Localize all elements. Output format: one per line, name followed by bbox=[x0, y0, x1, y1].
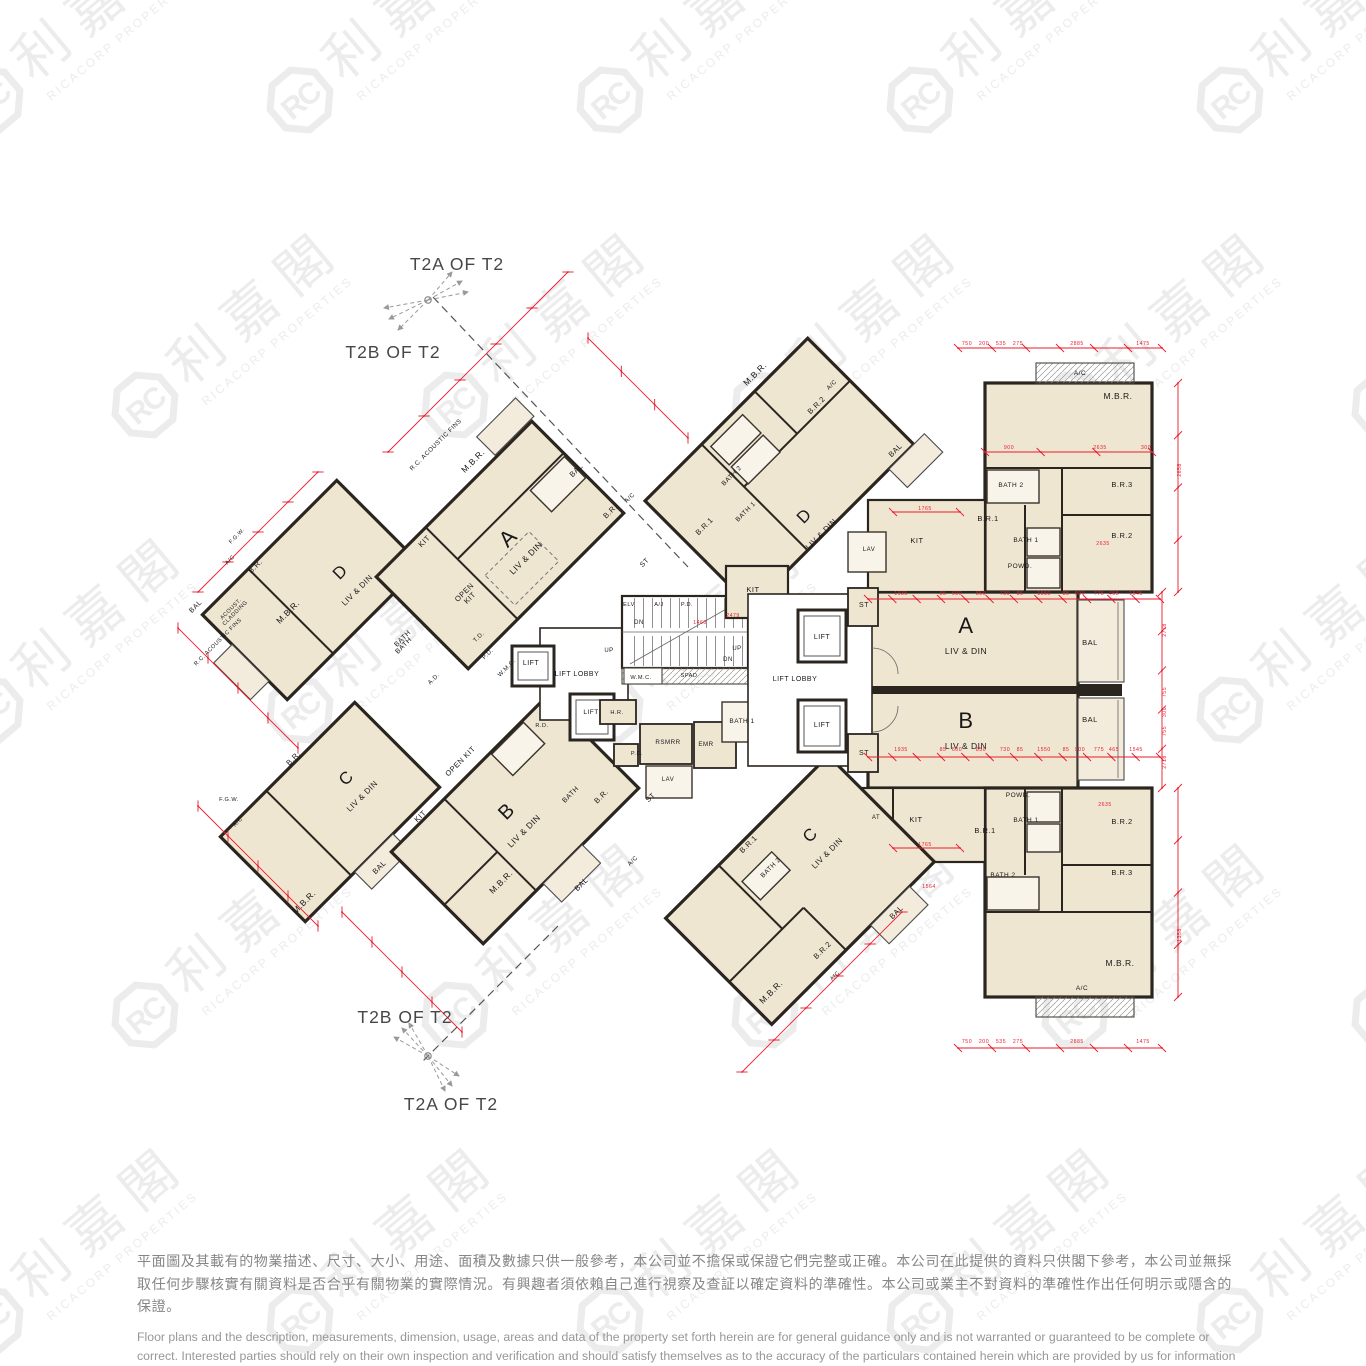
room-label: BATH 1 bbox=[1013, 817, 1038, 824]
room-label: POWD. bbox=[1006, 792, 1031, 799]
dim-label: 1550 bbox=[1037, 591, 1051, 597]
room-label: ST bbox=[859, 750, 869, 757]
dim-label: 730 bbox=[1000, 747, 1010, 753]
room-label: LAV bbox=[662, 777, 674, 783]
dim-label: 600 bbox=[952, 747, 962, 753]
arrow-top-ne bbox=[428, 272, 452, 300]
watermark-logo: RC利嘉閣RICACORP PROPERTIES bbox=[0, 0, 212, 152]
room-label: W.M.C. bbox=[630, 675, 651, 681]
room-label: KIT bbox=[746, 585, 759, 594]
dim-label: 775 bbox=[1094, 747, 1104, 753]
dim-label: 2635 bbox=[1096, 541, 1110, 547]
dim-label: 200 bbox=[979, 341, 989, 347]
room-label: AT bbox=[872, 815, 880, 821]
dim-label: 600 bbox=[952, 591, 962, 597]
dim-label: 465 bbox=[1109, 591, 1119, 597]
dim-label: 900 bbox=[1075, 591, 1085, 597]
watermark-logo: RC利嘉閣RICACORP PROPERTIES bbox=[101, 216, 367, 457]
dim-label: 2778 bbox=[1162, 623, 1168, 637]
watermark-logo: RC利嘉閣RICACORP PROPERTIES bbox=[0, 521, 212, 762]
room-label: KIT bbox=[909, 815, 922, 824]
room-label: LIFT bbox=[583, 709, 598, 716]
room-label: BATH 1 bbox=[729, 718, 754, 725]
dim-label: 275 bbox=[1013, 341, 1023, 347]
dim-label: 2885 bbox=[1070, 341, 1084, 347]
dim-label: 85 bbox=[940, 747, 947, 753]
room-label: ST bbox=[639, 557, 651, 569]
room-label: A/C bbox=[1074, 370, 1086, 377]
dim-label: 750 bbox=[962, 341, 972, 347]
dim-label: 1935 bbox=[894, 747, 908, 753]
room-label: LIFT LOBBY bbox=[773, 676, 818, 683]
dim-label: 755 bbox=[1162, 687, 1168, 697]
dim-label: 85 bbox=[940, 591, 947, 597]
dim-label: 85 bbox=[1063, 747, 1070, 753]
room-label: B.R.1 bbox=[977, 514, 998, 523]
dim-label: 300 bbox=[1162, 707, 1168, 717]
room-label: P.D. bbox=[681, 602, 693, 608]
watermark-logo: RC利嘉閣RICACORP PROPERTIES bbox=[1186, 0, 1366, 152]
room-label: BAL bbox=[1082, 638, 1098, 647]
dim-label: 2635 bbox=[1098, 802, 1112, 808]
dim-label: 465 bbox=[1109, 747, 1119, 753]
room-label: BATH 2 bbox=[998, 482, 1023, 489]
dim-label: 850 bbox=[976, 591, 986, 597]
svg-text:利嘉閣: 利嘉閣 bbox=[1242, 521, 1366, 702]
watermark-logo: RC利嘉閣RICACORP PROPERTIES bbox=[876, 0, 1142, 152]
label-t2b-top: T2B OF T2 bbox=[345, 342, 440, 362]
room-label: ELV bbox=[623, 602, 635, 608]
dim-label: 775 bbox=[1094, 591, 1104, 597]
dim-label: 1935 bbox=[894, 591, 908, 597]
dim-label: 1564 bbox=[922, 884, 936, 890]
dim-label: 1358 bbox=[1177, 928, 1183, 942]
dim-label: 900 bbox=[1075, 747, 1085, 753]
room-label: LAV bbox=[863, 547, 875, 553]
room-label: ST bbox=[859, 602, 869, 609]
room-label: B.R.2 bbox=[1111, 817, 1132, 826]
disclaimer-english: Floor plans and the description, measure… bbox=[137, 1328, 1241, 1366]
room-label: POWD. bbox=[1008, 563, 1033, 570]
floor-plan-page: RC利嘉閣RICACORP PROPERTIESRC利嘉閣RICACORP PR… bbox=[0, 0, 1366, 1366]
dim-label: 1765 bbox=[918, 506, 932, 512]
room-label: A bbox=[958, 613, 973, 638]
dim-label: 1545 bbox=[1129, 591, 1143, 597]
room-label: A/C bbox=[1076, 985, 1088, 992]
dim-label: 275 bbox=[1013, 1039, 1023, 1045]
svg-text:利嘉閣: 利嘉閣 bbox=[1242, 1131, 1366, 1312]
room-label: A.D. bbox=[427, 672, 441, 686]
dim-label: 85 bbox=[1017, 591, 1024, 597]
room-label: EMR bbox=[698, 741, 713, 748]
dim-label: 1545 bbox=[1129, 747, 1143, 753]
arrow-top-sw bbox=[398, 300, 428, 330]
room-label: F.G.W. bbox=[228, 527, 246, 545]
room-label: UP bbox=[604, 648, 613, 654]
dim-label: 535 bbox=[996, 341, 1006, 347]
disclaimer: 平面圖及其載有的物業描述、尺寸、大小、用途、面積及數據只供一般參考，本公司並不擔… bbox=[137, 1250, 1241, 1366]
arrow-bottom-nw bbox=[402, 1028, 428, 1056]
dim-label: 755 bbox=[1162, 726, 1168, 736]
room-label: M.B.R. bbox=[1104, 391, 1133, 401]
room-label: B.R.3 bbox=[1111, 480, 1132, 489]
room-label: LIFT bbox=[814, 634, 831, 641]
room-label: BAL bbox=[188, 599, 203, 614]
room-label: B.R.3 bbox=[1111, 868, 1132, 877]
dim-label: 1550 bbox=[1037, 747, 1051, 753]
dim-label: 2718 bbox=[1162, 755, 1168, 769]
room-label: F.G.W. bbox=[219, 797, 239, 803]
dim-label: 300 bbox=[1141, 445, 1151, 451]
dim-label: 1475 bbox=[1136, 1039, 1150, 1045]
room-label: RSMRR bbox=[655, 739, 680, 746]
label-t2a-top: T2A OF T2 bbox=[410, 254, 504, 274]
dim-label: 85 bbox=[1017, 747, 1024, 753]
dim-label: 1475 bbox=[1136, 341, 1150, 347]
watermark-logo: RC利嘉閣RICACORP PROPERTIES bbox=[566, 0, 832, 152]
room-label: LIV & DIN bbox=[945, 646, 987, 656]
room-label: BATH 2 bbox=[990, 872, 1015, 879]
label-t2a-bottom: T2A OF T2 bbox=[404, 1094, 498, 1114]
dim-label: 1765 bbox=[918, 842, 932, 848]
watermark-logo: RC利嘉閣RICACORP PROPERTIES bbox=[411, 216, 677, 457]
room-label: M.B.R. bbox=[1106, 958, 1135, 968]
dim-label: 2635 bbox=[1093, 445, 1107, 451]
room-label: P.D. bbox=[631, 751, 643, 757]
room-label: KIT bbox=[910, 536, 923, 545]
dim-label: 750 bbox=[962, 1039, 972, 1045]
room-label: SPAD bbox=[681, 673, 698, 679]
balcony-b-right bbox=[1078, 698, 1124, 780]
room-label: B.R.2 bbox=[1111, 531, 1132, 540]
dim-label: 2885 bbox=[1070, 1039, 1084, 1045]
watermark-logo: RC利嘉閣RICACORP PROPERTIES bbox=[256, 0, 522, 152]
watermark-logo: RC利嘉閣RICACORP PROPERTIES bbox=[1341, 216, 1366, 457]
room-label: A/C bbox=[624, 492, 636, 504]
room-label: LIFT bbox=[523, 660, 540, 667]
dim-label: 900 bbox=[1004, 445, 1014, 451]
room-label: DN bbox=[634, 620, 644, 626]
room-label: BAL bbox=[1082, 715, 1098, 724]
room-label: A/J bbox=[654, 602, 664, 608]
dim-label: 535 bbox=[996, 1039, 1006, 1045]
dim-label: 85 bbox=[1063, 591, 1070, 597]
room-label: DN bbox=[723, 657, 733, 663]
disclaimer-chinese: 平面圖及其載有的物業描述、尺寸、大小、用途、面積及數據只供一般參考，本公司並不擔… bbox=[137, 1250, 1241, 1318]
dim-label: 730 bbox=[1000, 591, 1010, 597]
room-label: B.R.1 bbox=[974, 826, 995, 835]
room-label: LIFT LOBBY bbox=[555, 671, 600, 678]
room-label: B bbox=[958, 708, 973, 733]
dim-label: 1460 bbox=[693, 620, 707, 626]
label-t2b-bottom: T2B OF T2 bbox=[357, 1007, 452, 1027]
watermark-logo: RC利嘉閣RICACORP PROPERTIES bbox=[1186, 521, 1366, 762]
dim-label: 2658 bbox=[1177, 463, 1183, 477]
room-label: UP bbox=[732, 646, 741, 652]
room-label: LIFT bbox=[814, 722, 831, 729]
dim-label: 2479 bbox=[726, 613, 740, 619]
dim-label: 850 bbox=[976, 747, 986, 753]
arrow-bottom-se bbox=[428, 1056, 459, 1076]
arrow-top-sw bbox=[389, 300, 428, 319]
dim-label: 200 bbox=[979, 1039, 989, 1045]
floor-plan-canvas: RC利嘉閣RICACORP PROPERTIESRC利嘉閣RICACORP PR… bbox=[0, 0, 1366, 1366]
room-label: BATH 1 bbox=[1013, 537, 1038, 544]
room-label: R.D. bbox=[535, 723, 548, 729]
watermark-logo: RC利嘉閣RICACORP PROPERTIES bbox=[1341, 826, 1366, 1067]
room-label: H.R. bbox=[610, 710, 623, 716]
ac-platform-bottom bbox=[1036, 997, 1134, 1017]
